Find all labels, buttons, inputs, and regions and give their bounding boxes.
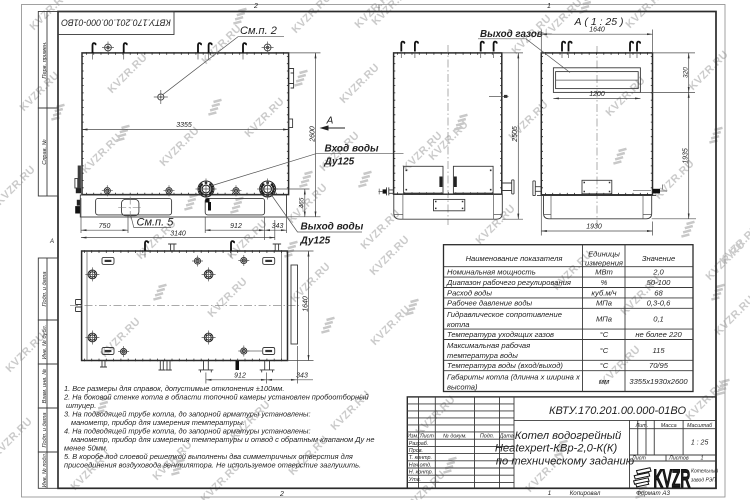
svg-text:Пров.: Пров. bbox=[409, 448, 423, 454]
svg-text:Дата: Дата bbox=[499, 434, 514, 440]
svg-text:Листов: Листов bbox=[668, 456, 689, 462]
svg-text:Лит.: Лит. bbox=[635, 423, 649, 429]
svg-text:70/95: 70/95 bbox=[649, 361, 669, 370]
svg-text:2600: 2600 bbox=[309, 126, 316, 143]
svg-text:%: % bbox=[601, 278, 608, 287]
svg-text:2: 2 bbox=[279, 491, 284, 498]
svg-text:3140: 3140 bbox=[170, 230, 186, 237]
svg-text:Heatexpert-КВр-2,0-К(К): Heatexpert-КВр-2,0-К(К) bbox=[495, 443, 618, 455]
svg-text:Габариты котла (длинна х ширин: Габариты котла (длинна х ширина х bbox=[447, 372, 581, 381]
svg-text:Выход газов: Выход газов bbox=[480, 29, 543, 40]
svg-text:Справ. №: Справ. № bbox=[42, 139, 48, 164]
svg-text:не более 220: не более 220 bbox=[635, 330, 682, 339]
svg-text:Вход воды: Вход воды bbox=[325, 143, 380, 154]
svg-text:912: 912 bbox=[230, 223, 242, 230]
svg-text:1935: 1935 bbox=[683, 148, 690, 164]
svg-text:Рабочее давление воды: Рабочее давление воды bbox=[447, 299, 533, 308]
svg-text:котла: котла bbox=[447, 320, 469, 329]
svg-text:Копировал: Копировал bbox=[570, 490, 601, 497]
svg-text:1 : 25: 1 : 25 bbox=[691, 440, 709, 447]
svg-text:1: 1 bbox=[701, 456, 704, 462]
svg-text:Ду125: Ду125 bbox=[300, 236, 331, 247]
svg-text:Котел водогрейный: Котел водогрейный bbox=[515, 430, 621, 442]
svg-text:См.п. 2: См.п. 2 bbox=[240, 25, 277, 37]
svg-text:Н. контр.: Н. контр. bbox=[409, 470, 433, 476]
svg-text:Котельный: Котельный bbox=[691, 468, 718, 475]
svg-text:Температура воды (вход/выход): Температура воды (вход/выход) bbox=[447, 361, 563, 370]
svg-text:Т. контр.: Т. контр. bbox=[409, 455, 432, 461]
svg-text:А: А bbox=[49, 239, 54, 245]
svg-text:куб.м/ч: куб.м/ч bbox=[591, 288, 616, 297]
svg-text:1: 1 bbox=[547, 3, 551, 10]
svg-text:манометр, прибор для измерения: манометр, прибор для измерения температу… bbox=[71, 435, 374, 444]
svg-text:°С: °С bbox=[600, 346, 609, 355]
svg-text:Масса: Масса bbox=[661, 423, 677, 429]
svg-text:Температура уходящих газов: Температура уходящих газов bbox=[447, 330, 554, 339]
svg-text:измерения: измерения bbox=[585, 258, 623, 267]
svg-text:343: 343 bbox=[296, 372, 308, 379]
svg-text:Лист: Лист bbox=[631, 456, 646, 462]
svg-text:2,0: 2,0 bbox=[652, 268, 664, 277]
svg-text:115: 115 bbox=[652, 346, 665, 355]
svg-text:См.п. 5: См.п. 5 bbox=[137, 216, 175, 228]
svg-text:750: 750 bbox=[99, 223, 111, 230]
svg-text:Нач.отд.: Нач.отд. bbox=[409, 462, 432, 468]
svg-text:0,1: 0,1 bbox=[653, 315, 664, 324]
svg-text:50-100: 50-100 bbox=[647, 278, 671, 287]
svg-text:Перв. примен.: Перв. примен. bbox=[42, 41, 48, 78]
svg-text:МВт: МВт bbox=[595, 268, 613, 277]
svg-text:присоединения воздуховода вент: присоединения воздуховода вентилятора. Н… bbox=[64, 460, 361, 469]
svg-text:1640: 1640 bbox=[589, 27, 605, 34]
svg-text:912: 912 bbox=[234, 372, 246, 379]
svg-text:343: 343 bbox=[272, 223, 284, 230]
svg-text:МПа: МПа bbox=[596, 299, 612, 308]
svg-text:Диапазон рабочего регулировани: Диапазон рабочего регулирования bbox=[446, 278, 571, 287]
svg-text:Номинальная мощность: Номинальная мощность bbox=[447, 268, 536, 277]
svg-text:3355х1930х2600: 3355х1930х2600 bbox=[629, 377, 688, 386]
svg-text:температура воды: температура воды bbox=[447, 351, 518, 360]
svg-text:Максимальная рабочая: Максимальная рабочая bbox=[447, 341, 530, 350]
svg-text:1: 1 bbox=[548, 490, 551, 497]
svg-text:0,3-0,6: 0,3-0,6 bbox=[647, 299, 671, 308]
svg-text:1930: 1930 bbox=[586, 224, 602, 231]
svg-text:высота): высота) bbox=[447, 382, 478, 391]
svg-text:68: 68 bbox=[654, 288, 663, 297]
svg-text:мм: мм bbox=[599, 377, 610, 386]
svg-text:Подп.: Подп. bbox=[480, 434, 494, 440]
svg-text:Изм.: Изм. bbox=[407, 434, 419, 440]
svg-text:°С: °С bbox=[600, 361, 609, 370]
svg-text:1200: 1200 bbox=[589, 91, 605, 98]
svg-text:МПа: МПа bbox=[596, 315, 612, 324]
svg-text:Наименование показателя: Наименование показателя bbox=[466, 254, 563, 263]
svg-text:завод РЭП: завод РЭП bbox=[690, 478, 716, 484]
svg-text:465: 465 bbox=[299, 197, 306, 208]
svg-text:КВТУ.170.201.00.000-01ВО: КВТУ.170.201.00.000-01ВО bbox=[61, 18, 171, 28]
svg-text:Единицы: Единицы bbox=[588, 250, 620, 259]
svg-text:1640: 1640 bbox=[303, 296, 310, 312]
svg-text:Лист: Лист bbox=[419, 434, 434, 440]
svg-text:°С: °С bbox=[600, 330, 609, 339]
svg-text:Инв. № дубл.: Инв. № дубл. bbox=[42, 325, 48, 359]
svg-text:Подп. и дата: Подп. и дата bbox=[42, 412, 48, 447]
svg-text:Гидравлическое сопротивление: Гидравлическое сопротивление bbox=[447, 310, 562, 319]
svg-text:А: А bbox=[326, 116, 334, 127]
svg-text:Взам. инв. №: Взам. инв. № bbox=[42, 369, 48, 404]
svg-text:2: 2 bbox=[253, 3, 258, 10]
svg-text:Выход воды: Выход воды bbox=[301, 222, 364, 233]
svg-text:KVZR: KVZR bbox=[654, 465, 691, 492]
svg-text:Инв. № подл.: Инв. № подл. bbox=[42, 453, 48, 488]
svg-text:Масштаб: Масштаб bbox=[687, 423, 713, 429]
svg-text:№ докум.: № докум. bbox=[443, 434, 467, 440]
svg-text:Значение: Значение bbox=[642, 254, 675, 263]
svg-text:Формат А3: Формат А3 bbox=[636, 490, 670, 497]
svg-text:Утв.: Утв. bbox=[408, 477, 421, 483]
svg-text:по техническому заданию: по техническому заданию bbox=[496, 455, 635, 467]
svg-text:320: 320 bbox=[683, 67, 690, 78]
svg-text:Ду125: Ду125 bbox=[324, 156, 355, 167]
svg-text:2505: 2505 bbox=[512, 126, 519, 143]
svg-text:3355: 3355 bbox=[176, 122, 192, 129]
svg-text:Подп. и дата: Подп. и дата bbox=[42, 271, 48, 306]
svg-text:КВТУ.170.201.00.000-01ВО: КВТУ.170.201.00.000-01ВО bbox=[549, 405, 686, 417]
svg-text:2. На боковой стенке котла в о: 2. На боковой стенке котла в области топ… bbox=[63, 392, 369, 401]
svg-text:Расход воды: Расход воды bbox=[447, 288, 492, 297]
svg-text:Разраб.: Разраб. bbox=[409, 441, 429, 447]
